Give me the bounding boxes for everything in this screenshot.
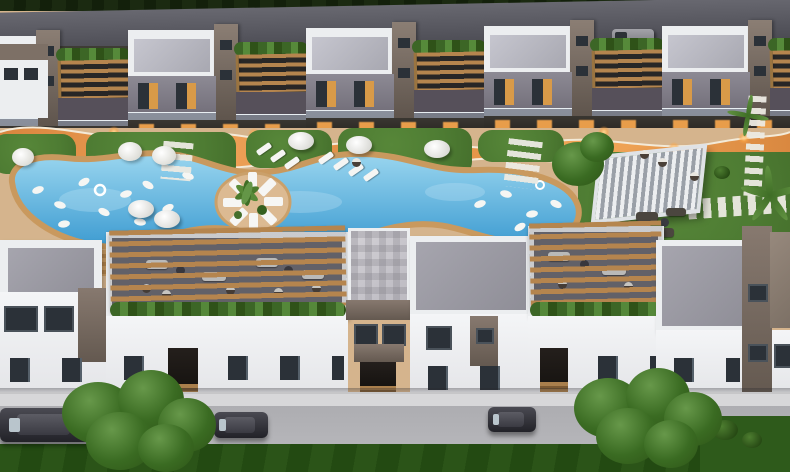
window [354, 324, 378, 346]
window [382, 324, 406, 346]
umbrella-canopy [424, 140, 450, 158]
car-windshield [493, 414, 499, 425]
entrance-door [360, 362, 396, 388]
patio-chair [640, 150, 649, 159]
tower-window [576, 36, 588, 46]
roof [484, 26, 572, 72]
roof [306, 28, 394, 74]
tower-window [220, 70, 232, 80]
timber-pergola [58, 59, 135, 99]
umbrella-canopy [128, 200, 154, 218]
stair-tower [742, 226, 772, 396]
front-building-unit [656, 224, 790, 396]
umbrella-canopy [346, 136, 372, 154]
window [44, 306, 74, 332]
umbrella-canopy [288, 132, 314, 150]
tower-window [398, 38, 410, 48]
window [774, 344, 790, 368]
parked-car [488, 407, 536, 432]
window [4, 68, 18, 80]
window [4, 306, 38, 332]
tower-window [754, 36, 766, 46]
patio-chair [690, 172, 699, 181]
round-daybed [118, 142, 142, 161]
bush [742, 432, 762, 448]
roof [662, 26, 750, 72]
sun-umbrella [424, 140, 450, 162]
front-building-unit [410, 236, 532, 396]
flat-roof [416, 242, 526, 310]
round-daybed [12, 148, 34, 166]
sofa [666, 208, 686, 216]
car-windshield [9, 418, 20, 433]
car-roof [497, 412, 525, 428]
window [476, 328, 494, 344]
window [748, 284, 768, 302]
roof-surface [312, 37, 388, 70]
tree [580, 132, 614, 162]
round-daybed [152, 146, 176, 165]
tower-window [398, 68, 410, 78]
flat-roof [662, 246, 746, 326]
car-windshield [219, 419, 225, 430]
tree-canopy [138, 424, 194, 472]
timber-pergola-slats [109, 225, 347, 310]
window-row [414, 366, 528, 390]
window [426, 326, 452, 350]
patio-chair [658, 158, 667, 167]
sun-umbrella [346, 136, 372, 158]
parked-car [214, 412, 268, 438]
patio-chair [352, 158, 361, 167]
sun-umbrella [288, 132, 314, 154]
timber-pergola [770, 49, 790, 89]
tower-window [220, 40, 232, 50]
timber-pergola [236, 53, 313, 93]
accent-panel [78, 288, 106, 362]
accent-panel [346, 300, 412, 320]
window [748, 344, 768, 362]
sun-umbrella [128, 200, 154, 222]
entry-canopy [354, 344, 404, 362]
roof [128, 30, 216, 76]
tower-window [754, 66, 766, 76]
timber-pergola [414, 51, 491, 91]
stepping-path [503, 138, 543, 190]
roof [0, 44, 48, 60]
tower-window [576, 66, 588, 76]
roof-surface [668, 35, 744, 68]
window-row [0, 358, 108, 382]
front-building-unit [0, 228, 112, 396]
roof-surface [134, 39, 210, 72]
car-roof [224, 417, 255, 433]
bush [714, 166, 730, 179]
window [24, 68, 38, 80]
timber-pergola-slats [529, 221, 663, 308]
textured-roof [348, 228, 410, 306]
render-scene [0, 0, 790, 472]
roof-deck [770, 232, 790, 328]
roof-surface [490, 35, 566, 68]
tree-canopy [644, 420, 698, 468]
front-entrance-tower [346, 226, 412, 396]
timber-pergola [592, 49, 669, 89]
